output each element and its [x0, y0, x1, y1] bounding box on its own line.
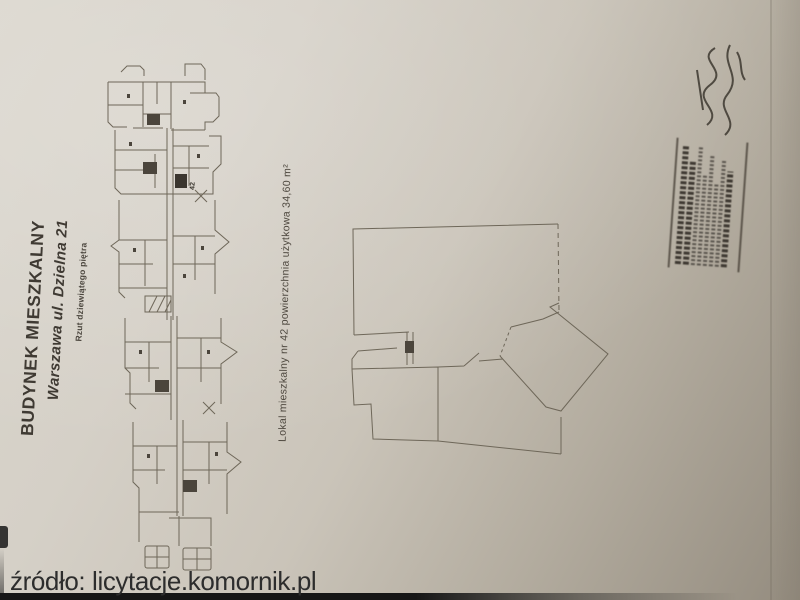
building-section-4 [125, 316, 237, 420]
document-page: BUDYNEK MIESZKALNY Warszawa ul. Dzielna … [0, 0, 800, 600]
building-section-2 [115, 128, 221, 224]
room-label-room2: pokój [0, 0, 17, 421]
unit-42-marker: 42 [189, 182, 196, 190]
building-address: Warszawa ul. Dzielna 21 [45, 219, 71, 400]
background-surface [772, 0, 800, 600]
unit-caption: Lokal mieszkalny nr 42 powierzchnia użyt… [277, 164, 294, 442]
building-section-5 [133, 420, 241, 570]
room-label-kitchen: kuchnia [0, 0, 17, 414]
watermark-artifact [0, 526, 8, 548]
building-title: BUDYNEK MIESZKALNY [17, 220, 49, 437]
surveyor-stamp-icon [668, 138, 749, 273]
handwritten-signature-icon [675, 40, 760, 145]
watermark-source-text: źródło: licytacje.komornik.pl [10, 566, 316, 597]
room-label-hall: przedpokój [0, 0, 17, 407]
building-section-3 [111, 200, 229, 320]
photographed-floorplan-document: BUDYNEK MIESZKALNY Warszawa ul. Dzielna … [0, 0, 800, 600]
building-section-top [108, 64, 219, 130]
building-floor-plan-drawing [95, 50, 265, 575]
apartment-floor-plan-drawing [345, 215, 625, 480]
plan-subtitle: Rzut dziewiątego piętra [73, 242, 88, 341]
room-label-living: pokój [0, 0, 17, 400]
